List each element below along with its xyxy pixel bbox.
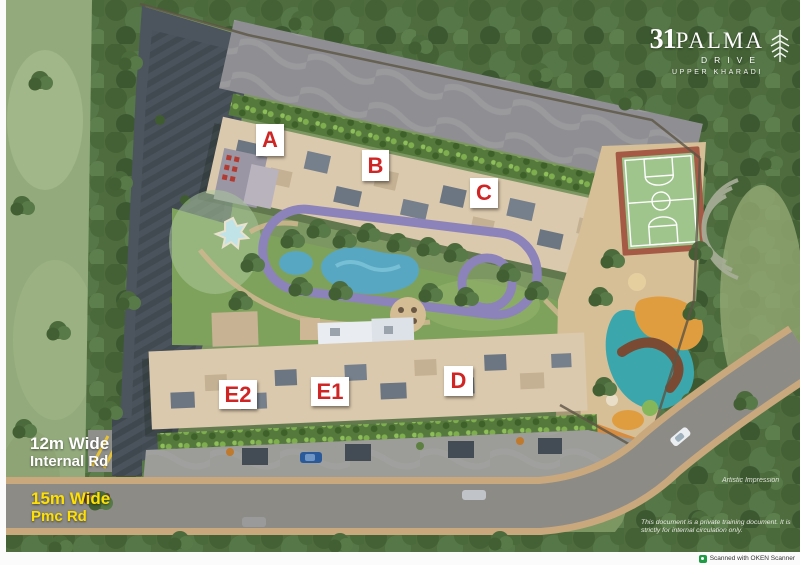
basketball-court xyxy=(615,146,706,256)
tower-label-a: A xyxy=(256,124,284,156)
disclaimer-line1: This document is a private training docu… xyxy=(641,519,778,526)
oken-scanner-icon xyxy=(699,555,707,563)
tower-label-e2: E2 xyxy=(219,380,257,409)
tower-label-c: C xyxy=(470,178,498,208)
project-logo: 31PALMA DRIVE UPPER KHARADI xyxy=(630,26,792,76)
logo-location: UPPER KHARADI xyxy=(630,69,763,76)
disclaimer-note: This document is a private training docu… xyxy=(641,519,793,535)
tower-label-d: D xyxy=(444,366,473,396)
internal-road-name: Internal Rd xyxy=(30,454,109,471)
tower-label-e1: E1 xyxy=(311,377,349,406)
pmc-road-name: Pmc Rd xyxy=(31,509,110,526)
logo-name: PALMA xyxy=(676,29,764,52)
logo-number: 31 xyxy=(650,26,676,54)
tower-label-b: B xyxy=(362,150,389,181)
logo-subtitle: DRIVE xyxy=(630,55,762,65)
scanner-note-text: Scanned with OKEN Scanner xyxy=(710,555,795,562)
page-margin-bottom: Scanned with OKEN Scanner xyxy=(0,552,800,565)
artistic-impression-watermark: Artistic Impression xyxy=(722,477,779,484)
pmc-road-width: 15m Wide xyxy=(31,490,110,509)
site-plan-rendering: 31PALMA DRIVE UPPER KHARADI A B C D E1 E… xyxy=(0,0,800,565)
pmc-road-label: 15m Wide Pmc Rd xyxy=(31,490,110,525)
aerial-site-plan-canvas xyxy=(0,0,800,552)
internal-road-width: 12m Wide xyxy=(30,435,109,454)
page-margin-left xyxy=(0,0,6,552)
scanner-attribution: Scanned with OKEN Scanner xyxy=(699,555,795,563)
internal-road-label: 12m Wide Internal Rd xyxy=(30,435,109,470)
palm-leaf-icon xyxy=(768,28,792,64)
